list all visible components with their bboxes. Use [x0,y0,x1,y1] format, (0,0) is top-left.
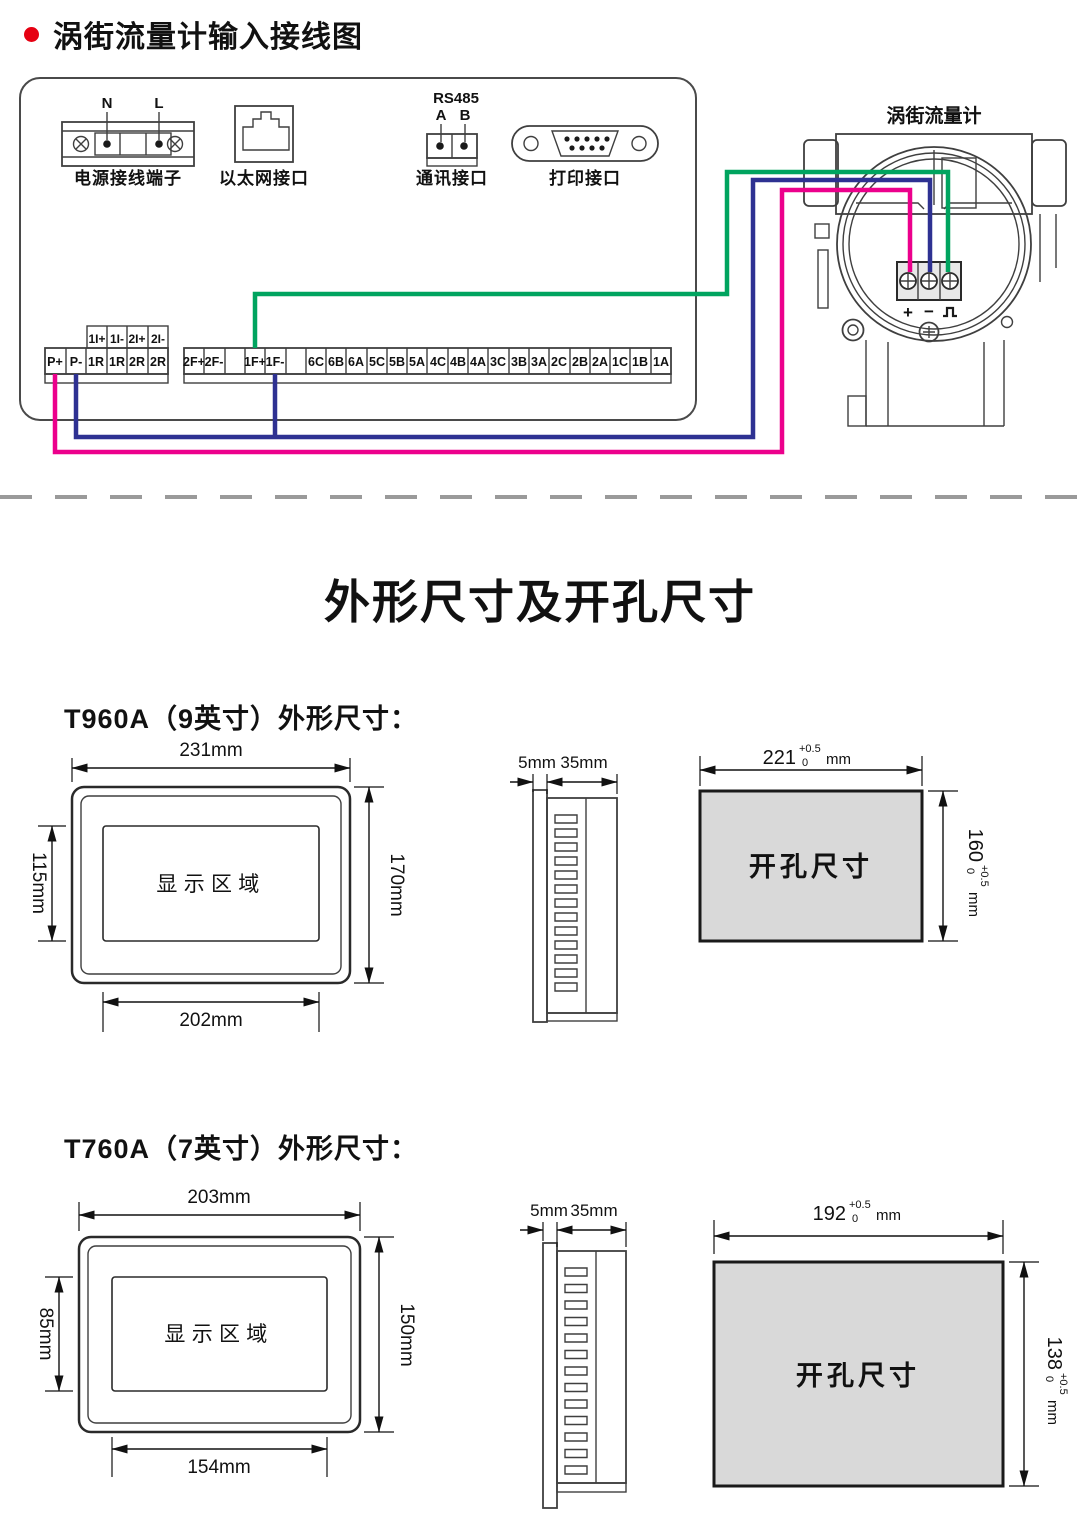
t760a-front-view: 显示区域 203mm 85mm 150mm 154mm [35,1187,417,1478]
printer-port-label: 打印接口 [549,168,621,188]
dim-width-top: 231mm [179,740,242,761]
terminal-cell-label: 4C [430,355,446,369]
dim-height-right: 150mm [396,1303,417,1366]
pin-a-label: A [436,107,447,124]
dim-width-top: 203mm [187,1187,250,1208]
terminal-cell-label: P+ [47,355,63,369]
t760a-side-view: 5mm 35mm [520,1201,626,1508]
cutout-width-tol-minus: 0 [802,757,808,769]
cutout-height-tol-minus: 0 [964,868,976,874]
terminal-cell-label: 4A [470,355,486,369]
terminal-cell-label: 2R [150,355,166,369]
terminal-cell-label: 1F+ [244,355,266,369]
cutout-height-tol-plus: +0.5 [1057,1373,1069,1395]
cutout-width-tol-plus: +0.5 [849,1199,871,1211]
dim-cutout-height: 138 +0.5 0 mm [1043,1337,1069,1425]
comm-port-label: 通讯接口 [416,168,488,188]
terminal-cell-label: 1A [653,355,669,369]
terminal-cell-label: 3A [531,355,547,369]
flowmeter-plus-label: + [903,303,913,322]
flowmeter-minus-label: − [924,302,934,321]
cutout-height-value: 160 [964,829,986,862]
terminal-cell-label: 2A [592,355,608,369]
terminal-cell-label: 6B [328,355,344,369]
flowmeter-label: 涡街流量计 [886,104,981,127]
t760a-cutout: 开孔尺寸 192 +0.5 0 mm 138 +0.5 0 mm [714,1199,1069,1486]
cutout-height-value: 138 [1043,1337,1065,1370]
terminal-cell-label: P- [70,355,83,369]
terminal-cell-label: 1R [109,355,125,369]
cutout-label: 开孔尺寸 [749,852,873,883]
terminal-cell-label: 2C [551,355,567,369]
display-area-label: 显示区域 [156,872,265,896]
terminal-cell-label: 5C [369,355,385,369]
cutout-width-tol-plus: +0.5 [799,743,821,755]
dim-depth: 35mm [560,753,607,772]
terminal-cell-label: 1R [88,355,104,369]
display-area-label: 显示区域 [164,1322,273,1346]
dim-display-height: 85mm [35,1308,56,1361]
section-title: 外形尺寸及开孔尺寸 [0,566,1080,632]
power-terminal-label: 电源接线端子 [74,168,182,188]
dim-display-height: 115mm [28,852,49,914]
cutout-width-unit: mm [826,751,851,768]
ethernet-port-label: 以太网接口 [219,168,309,188]
terminal-cell-label: 6A [348,355,364,369]
pin-n-label: N [102,95,113,112]
dashed-divider [0,495,1080,499]
cutout-height-tol-minus: 0 [1043,1376,1055,1382]
terminal-cell-label: 2I+ [128,332,145,346]
terminal-cell-label: 1I+ [88,332,105,346]
wiring-diagram: N L 电源接线端子 以太网接口 RS485 A B 通讯接口 [0,0,1080,460]
terminal-cell-label: 3C [490,355,506,369]
dim-display-width: 154mm [187,1457,250,1478]
pin-l-label: L [154,95,163,112]
t960a-front-view: 显示区域 231mm 115mm 170mm 202mm [28,740,407,1032]
pin-b-label: B [460,107,471,124]
cutout-width-value: 221 [763,747,796,769]
page: 涡街流量计输入接线图 N L 电源接线端子 以太网接口 [0,0,1080,1525]
cutout-height-unit: mm [1044,1400,1061,1425]
rs485-label: RS485 [433,90,479,107]
dim-cutout-width: 221 +0.5 0 mm [763,743,851,769]
cutout-label: 开孔尺寸 [796,1361,920,1392]
cutout-width-unit: mm [876,1207,901,1224]
dim-display-width: 202mm [179,1010,242,1031]
terminal-cell-label: 1F- [266,355,285,369]
terminal-cell-label: 2F+ [183,355,205,369]
terminal-cell-label: 1B [632,355,648,369]
cutout-width-tol-minus: 0 [852,1213,858,1225]
terminal-cell-label: 3B [511,355,527,369]
cutout-width-value: 192 [813,1203,846,1225]
terminal-cell-label: 2I- [151,332,165,346]
terminal-cell-label: 2R [129,355,145,369]
dim-cutout-width: 192 +0.5 0 mm [813,1199,901,1225]
t960a-side-view: 5mm 35mm [510,753,617,1022]
t760a-dimension-drawing: 显示区域 203mm 85mm 150mm 154mm 5mm 35mm [0,1160,1080,1525]
cutout-height-tol-plus: +0.5 [978,865,990,887]
dim-height-right: 170mm [386,853,407,916]
t960a-cutout: 开孔尺寸 221 +0.5 0 mm 160 +0.5 0 mm [700,743,990,941]
dim-cutout-height: 160 +0.5 0 mm [964,829,990,917]
dim-bezel: 5mm [518,753,556,772]
dim-bezel: 5mm [530,1201,568,1220]
terminal-cell-label: 1C [612,355,628,369]
terminal-cell-label: 6C [308,355,324,369]
terminal-cell-label: 4B [450,355,466,369]
t960a-dimension-drawing: 显示区域 231mm 115mm 170mm 202mm 5mm 35mm [0,730,1080,1060]
cutout-height-unit: mm [965,892,982,917]
pulse-symbol-icon [943,308,957,316]
terminal-cell-label: 1I- [110,332,124,346]
terminal-cell-label: 2F- [205,355,224,369]
terminal-cell-label: 5B [389,355,405,369]
dim-depth: 35mm [570,1201,617,1220]
terminal-cell-label: 5A [409,355,425,369]
terminal-cell-label: 2B [572,355,588,369]
flowmeter: 涡街流量计 + − [804,104,1066,426]
